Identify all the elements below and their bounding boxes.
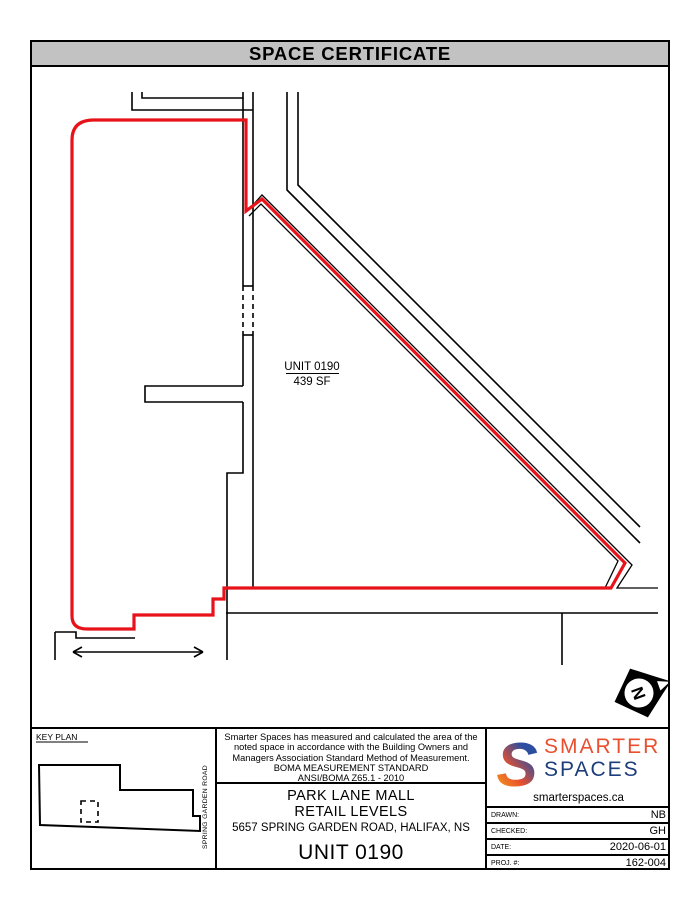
logo-area: S SMARTER SPACES smarterspaces.ca [487,729,670,808]
north-arrow-icon: N [606,657,670,726]
statement-line: ANSI/BOMA Z65.1 - 2010 [217,773,485,783]
key-plan-label: KEY PLAN [36,732,77,742]
row-value: NB [651,809,666,821]
logo-wordmark: SMARTER SPACES [544,735,660,781]
table-row-drawn: DRAWN: NB [487,808,670,824]
unit-boundary-red [72,120,625,629]
row-label: CHECKED: [491,828,527,835]
key-plan-unit-marker [81,801,98,822]
floor-plan-drawing: UNIT 0190 439 SF N [30,67,670,727]
logo-word-spaces: SPACES [544,758,660,781]
title-bar: SPACE CERTIFICATE [30,40,670,67]
statement-line: noted space in accordance with the Build… [217,742,485,752]
website-url: smarterspaces.ca [487,792,670,804]
table-row-proj: PROJ. #: 162-004 [487,856,670,870]
unit-number-label: UNIT 0190 [284,361,339,373]
unit-title: UNIT 0190 [217,841,485,864]
key-plan-drawing: KEY PLAN SPRING GARDEN ROAD [30,729,215,870]
wall-lines [55,92,658,665]
page-title: SPACE CERTIFICATE [249,43,451,65]
unit-area-label: 439 SF [293,376,330,388]
logo-s-letter: S [496,734,537,796]
row-value: 162-004 [626,857,666,869]
level-name: RETAIL LEVELS [217,804,485,820]
branding-and-title-block: S SMARTER SPACES smarterspaces.ca DRAWN:… [487,729,670,870]
statement-line: Managers Association Standard Method of … [217,753,485,763]
row-value: GH [650,825,667,837]
key-plan-building-outline [39,765,200,831]
row-label: DATE: [491,844,511,851]
boma-statement: Smarter Spaces has measured and calculat… [217,729,485,784]
title-panel: KEY PLAN SPRING GARDEN ROAD Smarter Spac… [30,727,670,870]
key-plan-box: KEY PLAN SPRING GARDEN ROAD [30,729,217,870]
project-address: 5657 SPRING GARDEN ROAD, HALIFAX, NS [217,822,485,835]
smarter-spaces-logo-icon: S [494,734,540,796]
street-label: SPRING GARDEN ROAD [202,765,209,849]
row-label: PROJ. #: [491,860,519,867]
row-label: DRAWN: [491,812,519,819]
table-row-date: DATE: 2020-06-01 [487,840,670,856]
project-details: PARK LANE MALL RETAIL LEVELS 5657 SPRING… [217,788,485,864]
row-value: 2020-06-01 [610,841,666,853]
title-block-table: DRAWN: NB CHECKED: GH DATE: 2020-06-01 P… [487,808,670,870]
statement-line: Smarter Spaces has measured and calculat… [217,732,485,742]
statement-line: BOMA MEASUREMENT STANDARD [217,763,485,773]
space-certificate-sheet: SPACE CERTIFICATE [0,0,700,900]
door-opening-dashed-lines [243,286,253,335]
table-row-checked: CHECKED: GH [487,824,670,840]
project-info-box: Smarter Spaces has measured and calculat… [217,729,487,870]
logo-word-smarter: SMARTER [544,735,660,758]
building-name: PARK LANE MALL [217,788,485,804]
